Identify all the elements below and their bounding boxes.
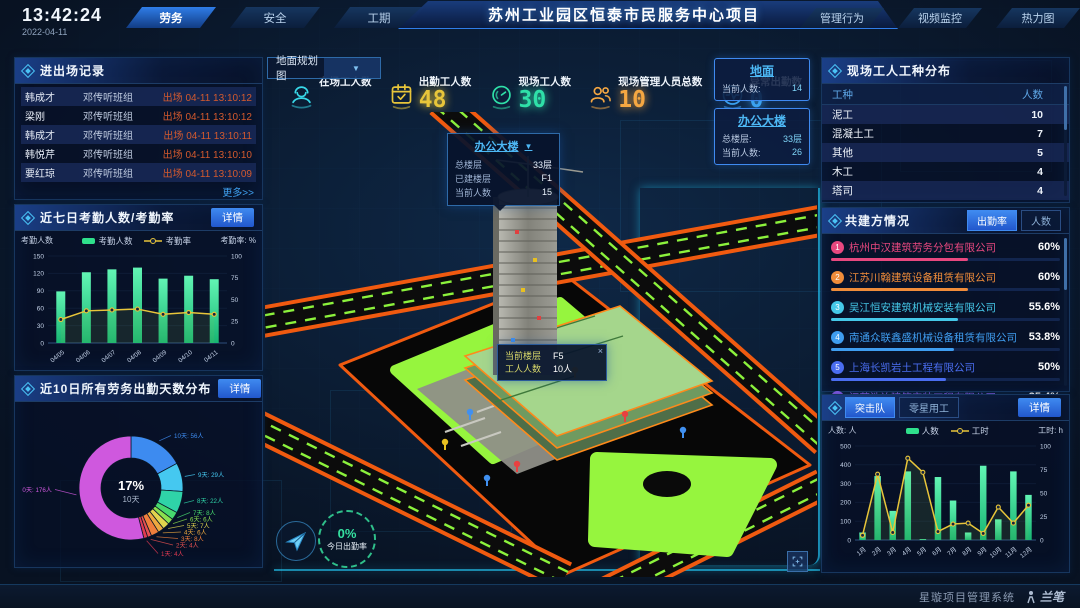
svg-text:300: 300 xyxy=(840,481,851,488)
svg-text:04/08: 04/08 xyxy=(126,349,143,365)
map-layer-select[interactable]: 地面规划图 ▼ xyxy=(267,57,381,79)
svg-text:10月: 10月 xyxy=(988,545,1003,560)
type-count: 10 xyxy=(1031,109,1043,121)
worker-name: 梁刚 xyxy=(25,108,83,123)
entry-row: 韩成才邓传听班组出场 04-11 13:10:12 xyxy=(21,87,256,106)
svg-text:25: 25 xyxy=(1040,514,1048,521)
svg-text:0: 0 xyxy=(231,340,235,347)
svg-text:04/10: 04/10 xyxy=(177,349,194,365)
legend-label: 人数 xyxy=(922,425,939,437)
diamond-icon xyxy=(21,381,35,395)
partner-item: 2江苏川翰建筑设备租赁有限公司60% xyxy=(831,269,1060,291)
svg-text:17%: 17% xyxy=(118,478,144,493)
svg-text:04/07: 04/07 xyxy=(100,349,117,365)
building-popup[interactable]: 办公大楼 ▼ 总楼层33层已建楼层F1当前人数15 xyxy=(447,133,560,206)
diamond-icon xyxy=(21,210,35,224)
partners-list: 1杭州中汉建筑劳务分包有限公司60%2江苏川翰建筑设备租赁有限公司60%3吴江恒… xyxy=(822,234,1069,395)
svg-text:0天: 176人: 0天: 176人 xyxy=(22,487,52,494)
entry-exit-list: 韩成才邓传听班组出场 04-11 13:10:12梁刚邓传听班组出场 04-11… xyxy=(15,84,262,182)
floor-tooltip: × 当前楼层F5工人人数10人 xyxy=(497,344,607,381)
building-popup-rows: 总楼层33层已建楼层F1当前人数15 xyxy=(455,157,552,199)
popup-row: 已建楼层F1 xyxy=(455,171,552,185)
partner-item: 1杭州中汉建筑劳务分包有限公司60% xyxy=(831,239,1060,261)
entry-row: 梁刚邓传听班组出场 04-11 13:10:12 xyxy=(21,106,256,125)
svg-text:1天: 4人: 1天: 4人 xyxy=(161,551,184,558)
site-stat: 出勤工人数48 xyxy=(388,74,472,113)
rank-badge: 2 xyxy=(831,271,844,284)
svg-text:8月: 8月 xyxy=(961,545,974,557)
map-layer-value: 地面规划图 xyxy=(268,53,324,83)
svg-text:100: 100 xyxy=(231,253,242,260)
worker-types-rows: 泥工10混凝土工7其他5木工4塔司4 xyxy=(822,105,1069,200)
calendar-icon xyxy=(388,80,415,110)
company-name: 江苏川翰建筑设备租赁有限公司 xyxy=(849,270,996,285)
entry-row: 韩成才邓传听班组出场 04-11 13:10:11 xyxy=(21,125,256,144)
paper-plane-icon xyxy=(284,529,308,553)
building-popup-title: 办公大楼 xyxy=(475,138,519,154)
svg-text:2天: 4人: 2天: 4人 xyxy=(176,543,199,550)
people-icon xyxy=(587,80,614,110)
rank-badge: 3 xyxy=(831,301,844,314)
worker-type-row: 混凝土工7 xyxy=(822,124,1069,143)
company-name: 吴江恒安建筑机械安装有限公司 xyxy=(849,300,996,315)
partners-tab[interactable]: 出勤率 xyxy=(967,210,1017,231)
progress-track xyxy=(831,348,1060,351)
legend-item: 考勤人数 xyxy=(82,235,132,247)
tooltip-row: 工人人数10人 xyxy=(505,362,599,375)
popup-label: 总楼层 xyxy=(455,158,482,171)
worker-name: 韩成才 xyxy=(25,127,83,142)
clock: 13:42:24 2022-04-11 xyxy=(22,5,102,37)
floor-card-label: 当前人数: xyxy=(722,82,761,95)
svg-text:100: 100 xyxy=(840,519,851,526)
right-axis-label: 考勤率: % xyxy=(220,235,256,246)
partners-title: 共建方情况 xyxy=(845,212,910,229)
popup-value: 33层 xyxy=(533,158,552,171)
svg-text:04/09: 04/09 xyxy=(152,349,169,365)
scrollbar[interactable] xyxy=(1064,238,1067,386)
progress-fill xyxy=(831,288,968,291)
popup-value: 15 xyxy=(542,187,552,197)
legend-label: 考勤人数 xyxy=(98,235,132,247)
stat-col: 现场工人数30 xyxy=(519,74,572,113)
popup-label: 当前人数 xyxy=(455,186,491,199)
svg-text:5月: 5月 xyxy=(915,545,928,557)
svg-text:9月: 9月 xyxy=(976,545,989,557)
workdays-panel: 近10日所有劳务出勤天数分布 详情 10天: 56人9天: 29人8天: 22人… xyxy=(14,375,263,568)
today-attendance-gauge: 0% 今日出勤率 xyxy=(318,510,376,568)
chart-legend: 人数工时 xyxy=(856,425,1038,437)
team-name: 邓传听班组 xyxy=(83,146,163,161)
svg-text:200: 200 xyxy=(840,500,851,507)
partners-tabs: 出勤率人数 xyxy=(967,210,1061,231)
worker-types-header: 工种 人数 xyxy=(822,84,1069,105)
worker-type-row: 泥工10 xyxy=(822,105,1069,124)
type-count: 4 xyxy=(1037,185,1043,197)
tooltip-label: 工人人数 xyxy=(505,362,553,375)
module-tabs-right: 管理行为视频监控热力图 xyxy=(800,8,1080,28)
legend-swatch xyxy=(906,428,919,434)
fullscreen-button[interactable] xyxy=(787,551,808,572)
progress-fill xyxy=(831,348,954,351)
more-link[interactable]: 更多>> xyxy=(15,182,262,199)
rank-badge: 4 xyxy=(831,331,844,344)
svg-text:6月: 6月 xyxy=(931,545,944,557)
compass-button[interactable] xyxy=(276,521,316,561)
nav-tab[interactable]: 劳务 xyxy=(126,7,216,28)
svg-text:10天: 56人: 10天: 56人 xyxy=(174,433,204,440)
company-name: 杭州中汉建筑劳务分包有限公司 xyxy=(849,240,996,255)
diamond-icon xyxy=(828,213,842,227)
progress-track xyxy=(831,258,1060,261)
svg-text:8天: 22人: 8天: 22人 xyxy=(197,498,223,505)
exit-event: 出场 04-11 13:10:11 xyxy=(163,127,252,142)
worker-type-row: 塔司4 xyxy=(822,181,1069,200)
type-name: 混凝土工 xyxy=(832,126,874,141)
svg-text:60: 60 xyxy=(37,306,45,313)
svg-text:400: 400 xyxy=(840,462,851,469)
floor-card-row: 当前人数:26 xyxy=(722,145,802,159)
rank-badge: 5 xyxy=(831,361,844,374)
gauge-icon xyxy=(488,80,515,110)
partner-item: 5上海长凯岩土工程有限公司50% xyxy=(831,359,1060,381)
type-name: 木工 xyxy=(832,164,853,179)
popup-row: 当前人数15 xyxy=(455,185,552,199)
worker-type-row: 木工4 xyxy=(822,162,1069,181)
exit-event: 出场 04-11 13:10:09 xyxy=(163,165,252,180)
tooltip-label: 当前楼层 xyxy=(505,349,553,362)
stat-col: 在场工人数 xyxy=(319,74,372,113)
rank-badge: 1 xyxy=(831,241,844,254)
floor-cards: 地面当前人数:14办公大楼总楼层:33层当前人数:26 xyxy=(714,58,810,165)
left-axis-label: 考勤人数 xyxy=(21,235,53,246)
worker-name: 韩成才 xyxy=(25,89,83,104)
type-count: 4 xyxy=(1037,166,1043,178)
legend-item: 考勤率 xyxy=(144,235,191,247)
scrollbar[interactable] xyxy=(1064,86,1067,196)
floor-card-value: 33层 xyxy=(783,132,802,145)
system-name: 星璇项目管理系统 xyxy=(919,589,1015,605)
svg-text:1月: 1月 xyxy=(855,545,868,557)
stat-value: 30 xyxy=(519,89,572,113)
legend-item: 人数 xyxy=(906,425,939,437)
floor-card[interactable]: 地面当前人数:14 xyxy=(714,58,810,101)
popup-label: 已建楼层 xyxy=(455,172,491,185)
squad-legend-row: 人数: 人人数工时工时: h xyxy=(822,421,1069,438)
left-axis-label: 人数: 人 xyxy=(828,425,856,436)
svg-text:04/06: 04/06 xyxy=(75,349,92,365)
progress-track xyxy=(831,288,1060,291)
popup-value: F1 xyxy=(541,173,552,183)
legend-swatch xyxy=(82,238,95,244)
svg-text:50: 50 xyxy=(1040,490,1048,497)
stat-col: 出勤工人数48 xyxy=(419,74,472,113)
partner-item: 3吴江恒安建筑机械安装有限公司55.6% xyxy=(831,299,1060,321)
gauge-value: 0% xyxy=(338,526,357,541)
col-type: 工种 xyxy=(832,87,853,102)
svg-text:25: 25 xyxy=(231,319,239,326)
partner-item: 4南通众联鑫盛机械设备租赁有限公司53.8% xyxy=(831,329,1060,351)
svg-text:150: 150 xyxy=(33,253,44,260)
company-name: 南通众联鑫盛机械设备租赁有限公司 xyxy=(849,330,1017,345)
diamond-icon xyxy=(21,63,35,77)
entry-row: 韩悦芹邓传听班组出场 04-11 13:10:10 xyxy=(21,144,256,163)
squad-panel: 突击队零星用工 详情 人数: 人人数工时工时: h 01002003004005… xyxy=(821,394,1070,573)
chevron-down-icon: ▼ xyxy=(324,58,380,78)
svg-text:2月: 2月 xyxy=(870,545,883,557)
type-count: 7 xyxy=(1037,128,1043,140)
svg-text:120: 120 xyxy=(33,271,44,278)
floor-card-label: 当前人数: xyxy=(722,146,761,159)
partners-panel: 共建方情况 出勤率人数 1杭州中汉建筑劳务分包有限公司60%2江苏川翰建筑设备租… xyxy=(821,207,1070,392)
worker-name: 韩悦芹 xyxy=(25,146,83,161)
progress-track xyxy=(831,378,1060,381)
company-name: 上海长凯岩土工程有限公司 xyxy=(849,360,975,375)
time: 13:42:24 xyxy=(22,5,102,26)
nav-tab[interactable]: 热力图 xyxy=(996,8,1080,28)
team-name: 邓传听班组 xyxy=(83,89,163,104)
attendance-panel: 近七日考勤人数/考勤率 详情 考勤人数考勤人数考勤率考勤率: % 0306090… xyxy=(14,204,263,371)
floor-card-title: 办公大楼 xyxy=(722,112,802,129)
type-count: 5 xyxy=(1037,147,1043,159)
svg-text:7月: 7月 xyxy=(946,545,959,557)
svg-text:0: 0 xyxy=(1040,537,1044,544)
partner-row: 3吴江恒安建筑机械安装有限公司55.6% xyxy=(831,299,1060,315)
attendance-pct: 60% xyxy=(1038,271,1060,283)
svg-text:30: 30 xyxy=(37,323,45,330)
team-name: 邓传听班组 xyxy=(83,165,163,180)
team-name: 邓传听班组 xyxy=(83,108,163,123)
tooltip-row: 当前楼层F5 xyxy=(505,349,599,362)
tooltip-value: F5 xyxy=(553,351,564,361)
workdays-detail-button[interactable]: 详情 xyxy=(218,379,261,398)
diamond-icon xyxy=(828,400,842,414)
dashboard: 13:42:24 2022-04-11 劳务安全工期 苏州工业园区恒泰市民服务中… xyxy=(0,0,1080,608)
gauge-label: 今日出勤率 xyxy=(327,541,367,552)
svg-text:0: 0 xyxy=(847,537,851,544)
svg-text:4月: 4月 xyxy=(900,545,913,557)
nav-tab[interactable]: 视频监控 xyxy=(898,8,982,28)
stat-value: 48 xyxy=(419,89,472,113)
svg-text:90: 90 xyxy=(37,288,45,295)
floor-card-row: 总楼层:33层 xyxy=(722,131,802,145)
worker-types-panel: 现场工人工种分布 工种 人数 泥工10混凝土工7其他5木工4塔司4 xyxy=(821,57,1070,203)
col-count: 人数 xyxy=(1022,87,1043,102)
chart-legend: 考勤人数考勤率 xyxy=(53,235,220,247)
worker-types-title: 现场工人工种分布 xyxy=(847,62,951,79)
footer-bar: 星璇项目管理系统 兰笔 xyxy=(0,584,1080,608)
nav-tab[interactable]: 管理行为 xyxy=(800,8,884,28)
exit-event: 出场 04-11 13:10:10 xyxy=(163,146,252,161)
stat-value: 10 xyxy=(618,89,702,113)
svg-text:10天: 10天 xyxy=(123,495,140,504)
svg-text:100: 100 xyxy=(1040,443,1051,450)
attendance-title: 近七日考勤人数/考勤率 xyxy=(40,209,174,226)
logo-figure-icon xyxy=(1025,590,1037,604)
workdays-donut-chart: 10天: 56人9天: 29人8天: 22人7天: 8人6天: 6人5天: 7人… xyxy=(18,404,259,566)
svg-text:04/05: 04/05 xyxy=(49,349,66,365)
right-axis-label: 工时: h xyxy=(1038,425,1063,436)
partner-row: 4南通众联鑫盛机械设备租赁有限公司53.8% xyxy=(831,329,1060,345)
floor-card-value: 14 xyxy=(792,83,802,93)
top-bar: 13:42:24 2022-04-11 劳务安全工期 苏州工业园区恒泰市民服务中… xyxy=(0,0,1080,38)
worker-name: 要红琼 xyxy=(25,165,83,180)
stat-value xyxy=(319,89,372,113)
floor-card-value: 26 xyxy=(792,147,802,157)
page-title: 苏州工业园区恒泰市民服务中心项目 xyxy=(488,4,760,25)
attendance-pct: 50% xyxy=(1038,361,1060,373)
fullscreen-icon xyxy=(791,555,804,568)
floor-card[interactable]: 办公大楼总楼层:33层当前人数:26 xyxy=(714,108,810,165)
svg-text:50: 50 xyxy=(231,297,239,304)
squad-tabs: 突击队零星用工 xyxy=(845,397,959,418)
partner-row: 1杭州中汉建筑劳务分包有限公司60% xyxy=(831,239,1060,255)
partner-row: 2江苏川翰建筑设备租赁有限公司60% xyxy=(831,269,1060,285)
svg-text:04/11: 04/11 xyxy=(203,349,220,364)
exit-event: 出场 04-11 13:10:12 xyxy=(163,89,252,104)
logo-text: 兰笔 xyxy=(1040,588,1064,605)
partner-row: 5上海长凯岩土工程有限公司50% xyxy=(831,359,1060,375)
worker-type-row: 其他5 xyxy=(822,143,1069,162)
attendance-pct: 60% xyxy=(1038,241,1060,253)
team-name: 邓传听班组 xyxy=(83,127,163,142)
svg-text:75: 75 xyxy=(231,275,239,282)
chevron-down-icon[interactable]: ▼ xyxy=(525,142,533,151)
floor-card-label: 总楼层: xyxy=(722,132,752,145)
attendance-pct: 53.8% xyxy=(1029,331,1060,343)
svg-text:12月: 12月 xyxy=(1018,545,1033,560)
svg-text:11月: 11月 xyxy=(1004,545,1019,559)
legend-label: 考勤率 xyxy=(165,235,191,247)
type-name: 塔司 xyxy=(832,183,853,198)
floor-tooltip-rows: 当前楼层F5工人人数10人 xyxy=(505,349,599,375)
entry-exit-panel: 进出场记录 韩成才邓传听班组出场 04-11 13:10:12梁刚邓传听班组出场… xyxy=(14,57,263,200)
entry-exit-title: 进出场记录 xyxy=(40,62,105,79)
stat-col: 现场管理人员总数10 xyxy=(618,74,702,113)
type-name: 泥工 xyxy=(832,107,853,122)
svg-text:75: 75 xyxy=(1040,467,1048,474)
svg-text:0: 0 xyxy=(40,340,44,347)
squad-detail-button[interactable]: 详情 xyxy=(1018,398,1061,417)
site-stat: 现场工人数30 xyxy=(488,74,572,113)
diamond-icon xyxy=(828,63,842,77)
tooltip-value: 10人 xyxy=(553,362,572,375)
type-name: 其他 xyxy=(832,145,853,160)
legend-label: 工时 xyxy=(972,425,989,437)
legend-item: 工时 xyxy=(951,425,989,437)
attendance-legend-row: 考勤人数考勤人数考勤率考勤率: % xyxy=(15,231,262,248)
exit-event: 出场 04-11 13:10:12 xyxy=(163,108,252,123)
squad-tab[interactable]: 突击队 xyxy=(845,397,895,418)
progress-track xyxy=(831,318,1060,321)
squad-tab[interactable]: 零星用工 xyxy=(899,397,959,418)
worker-icon xyxy=(288,80,315,110)
brand-logo: 兰笔 xyxy=(1025,588,1064,605)
date: 2022-04-11 xyxy=(22,27,102,37)
site-stat: 现场管理人员总数10 xyxy=(587,74,702,113)
svg-text:500: 500 xyxy=(840,443,851,450)
attendance-detail-button[interactable]: 详情 xyxy=(211,208,254,227)
module-tabs-left: 劳务安全工期 xyxy=(126,7,424,28)
attendance-chart: 0306090120150025507510004/0504/0604/0704… xyxy=(18,248,259,369)
partners-tab[interactable]: 人数 xyxy=(1021,210,1061,231)
workdays-title: 近10日所有劳务出勤天数分布 xyxy=(40,380,211,397)
close-icon[interactable]: × xyxy=(598,346,603,356)
progress-fill xyxy=(831,318,958,321)
svg-text:9天: 29人: 9天: 29人 xyxy=(198,472,224,479)
popup-row: 总楼层33层 xyxy=(455,157,552,171)
entry-row: 要红琼邓传听班组出场 04-11 13:10:09 xyxy=(21,163,256,182)
nav-tab[interactable]: 安全 xyxy=(230,7,320,28)
floor-card-row: 当前人数:14 xyxy=(722,81,802,95)
floor-card-title: 地面 xyxy=(722,62,802,79)
progress-fill xyxy=(831,378,946,381)
svg-text:3月: 3月 xyxy=(885,545,898,557)
attendance-pct: 55.6% xyxy=(1029,301,1060,313)
squad-chart: 010020030040050002550751001月2月3月4月5月6月7月… xyxy=(825,438,1066,568)
progress-fill xyxy=(831,258,968,261)
